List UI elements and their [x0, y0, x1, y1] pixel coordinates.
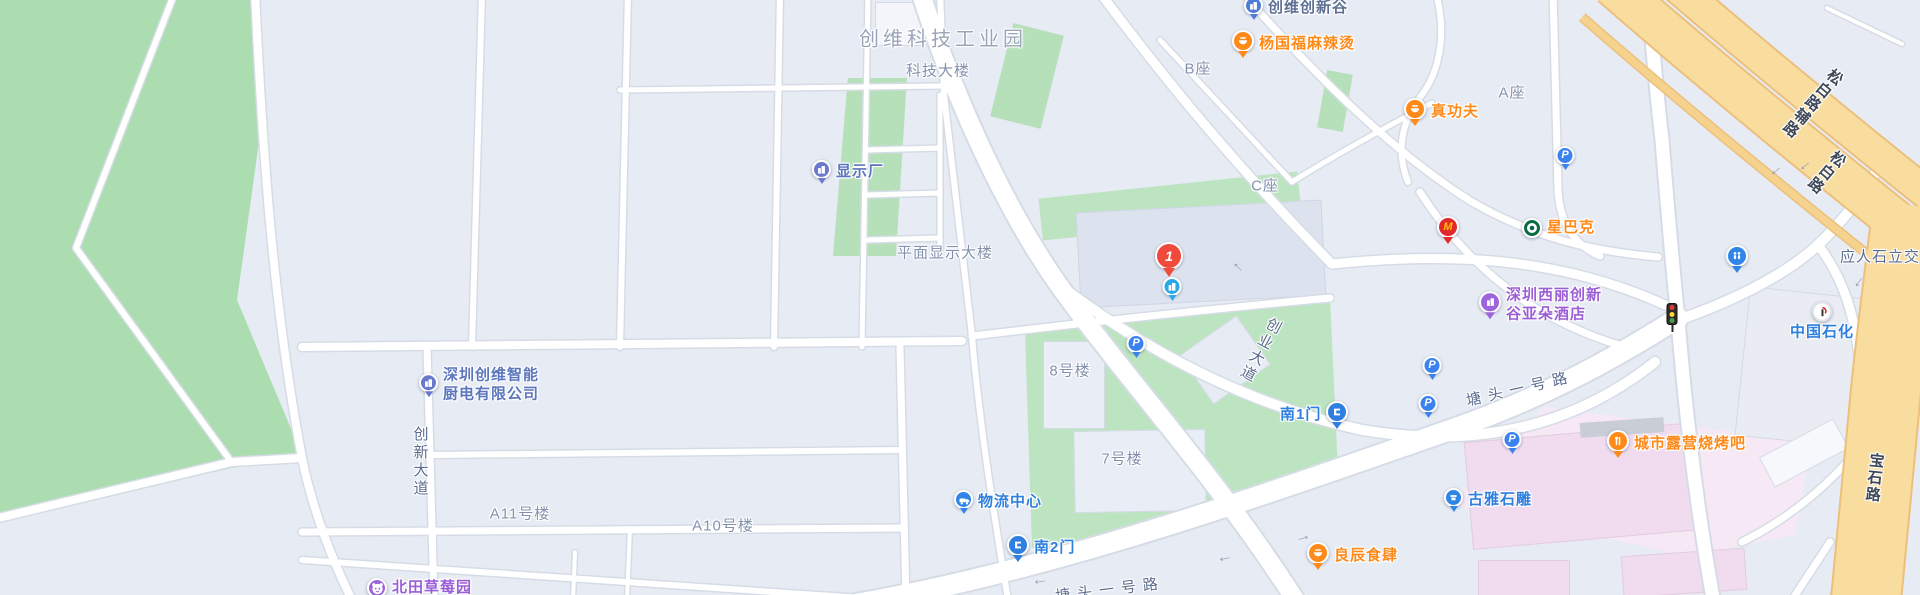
- traffic-light-icon: [1667, 303, 1678, 332]
- parking-icon[interactable]: P: [1419, 394, 1438, 418]
- road-arrow-icon: →: [1031, 573, 1049, 593]
- poi-label-line: 谷亚朵酒店: [1506, 305, 1602, 324]
- road-arrow-icon: →: [1215, 550, 1234, 571]
- label-flat-display-building: 平面显示大楼: [897, 242, 993, 263]
- building-icon[interactable]: [419, 373, 438, 397]
- poi-strawberry-farm[interactable]: 北田草莓园: [367, 578, 472, 595]
- poi-skyworth-innovation-valley[interactable]: 创维创新谷: [1244, 0, 1348, 20]
- restroom-poi[interactable]: [1726, 245, 1748, 273]
- result-marker-1[interactable]: 1: [1155, 242, 1183, 278]
- poi-label-line: 深圳创维智能: [443, 366, 539, 385]
- bowl-icon[interactable]: [1307, 542, 1329, 570]
- poi-south-gate-2[interactable]: 南2门: [1007, 534, 1075, 562]
- poi-city-camping-bbq[interactable]: 城市露营烧烤吧: [1607, 430, 1746, 458]
- poi-atour-hotel[interactable]: 深圳西丽创新谷亚朵酒店: [1479, 286, 1602, 324]
- label-block-a: A座: [1498, 82, 1525, 103]
- poi-display-factory[interactable]: 显示厂: [812, 160, 884, 184]
- parking-p-glyph: P: [1132, 338, 1139, 349]
- poi-atour-hotel-label[interactable]: 深圳西丽创新谷亚朵酒店: [1506, 286, 1602, 324]
- building-icon[interactable]: [812, 160, 831, 184]
- bowl-icon[interactable]: [1232, 30, 1254, 58]
- poi-south-gate-2-label[interactable]: 南2门: [1034, 539, 1075, 558]
- parking-poi[interactable]: P: [1423, 356, 1442, 380]
- parking-icon[interactable]: P: [1423, 356, 1442, 380]
- poi-skyworth-kitchen-label[interactable]: 深圳创维智能厨电有限公司: [443, 366, 539, 404]
- stone-box-icon[interactable]: [1444, 488, 1463, 512]
- label-chuangxin-avenue: 创新大道: [410, 426, 431, 498]
- poi-skyworth-innovation-valley-label[interactable]: 创维创新谷: [1268, 0, 1348, 17]
- poi-south-gate-1-label[interactable]: 南1门: [1280, 406, 1321, 425]
- truck-icon[interactable]: [954, 490, 973, 514]
- poi-guya-stone-carving-label[interactable]: 古雅石雕: [1468, 491, 1532, 510]
- poi-south-gate-1[interactable]: 南1门: [1280, 401, 1348, 429]
- poi-logistics-center-label[interactable]: 物流中心: [978, 493, 1042, 512]
- gate-icon[interactable]: [1007, 534, 1029, 562]
- parking-p-glyph: P: [1508, 434, 1515, 445]
- parking-icon[interactable]: P: [1503, 430, 1522, 454]
- parking-poi[interactable]: P: [1503, 430, 1522, 454]
- poi-yangguofu-label[interactable]: 杨国福麻辣烫: [1259, 35, 1355, 54]
- label-tech-building: 科技大楼: [906, 60, 970, 81]
- bowl-icon[interactable]: [1404, 98, 1426, 126]
- label-yingrenshi-interchange: 应人石立交: [1840, 246, 1920, 267]
- map-canvas[interactable]: 创维科技工业园 科技大楼 B座 A座 C座 平面显示大楼 8号楼 7号楼 A11…: [0, 0, 1920, 595]
- sinopec-icon[interactable]: [1812, 302, 1832, 322]
- parking-p-glyph: P: [1424, 398, 1431, 409]
- parking-poi[interactable]: P: [1419, 394, 1438, 418]
- poi-zhengongfu[interactable]: 真功夫: [1404, 98, 1479, 126]
- parking-poi[interactable]: P: [1127, 334, 1146, 358]
- poi-city-camping-bbq-label[interactable]: 城市露营烧烤吧: [1634, 435, 1746, 454]
- poi-skyworth-kitchen[interactable]: 深圳创维智能厨电有限公司: [419, 366, 539, 404]
- label-block-c: C座: [1251, 175, 1279, 196]
- starbucks-icon[interactable]: [1522, 218, 1542, 238]
- hotel-building-icon[interactable]: [1479, 291, 1501, 319]
- poi-mcdonalds[interactable]: M: [1437, 216, 1459, 244]
- fork-knife-icon[interactable]: [1607, 430, 1629, 458]
- poi-guya-stone-carving[interactable]: 古雅石雕: [1444, 488, 1532, 512]
- marker-1-pin-icon[interactable]: 1: [1155, 242, 1183, 278]
- panda-icon[interactable]: [367, 578, 387, 595]
- poi-yangguofu[interactable]: 杨国福麻辣烫: [1232, 30, 1355, 58]
- poi-liangchen-restaurant[interactable]: 良辰食肆: [1307, 542, 1398, 570]
- parking-p-glyph: P: [1428, 360, 1435, 371]
- label-building-8: 8号楼: [1049, 360, 1090, 381]
- label-building-a10: A10号楼: [692, 515, 754, 536]
- marker-number: 1: [1165, 249, 1173, 263]
- poi-label-line: 深圳西丽创新: [1506, 286, 1602, 305]
- poi-sinopec[interactable]: 中国石化: [1790, 302, 1854, 343]
- mcdonalds-icon[interactable]: M: [1437, 216, 1459, 244]
- label-building-a11: A11号楼: [490, 503, 551, 524]
- parking-p-glyph: P: [1561, 150, 1568, 161]
- parking-icon[interactable]: P: [1556, 146, 1575, 170]
- building-icon[interactable]: [1244, 0, 1263, 20]
- poi-starbucks[interactable]: 星巴克: [1522, 218, 1595, 238]
- poi-display-factory-label[interactable]: 显示厂: [836, 163, 884, 182]
- poi-starbucks-label[interactable]: 星巴克: [1547, 219, 1595, 238]
- parking-poi[interactable]: P: [1556, 146, 1575, 170]
- poi-strawberry-farm-label[interactable]: 北田草莓园: [392, 579, 472, 595]
- label-industrial-park: 创维科技工业园: [859, 23, 1027, 52]
- label-building-7: 7号楼: [1101, 448, 1142, 469]
- poi-logistics-center[interactable]: 物流中心: [954, 490, 1042, 514]
- gate-icon[interactable]: [1326, 401, 1348, 429]
- poi-liangchen-restaurant-label[interactable]: 良辰食肆: [1334, 547, 1398, 566]
- label-block-b: B座: [1184, 58, 1211, 79]
- restroom-icon[interactable]: [1726, 245, 1748, 273]
- mcdonalds-m-glyph: M: [1443, 222, 1452, 233]
- poi-zhengongfu-label[interactable]: 真功夫: [1431, 103, 1479, 122]
- poi-label-line: 厨电有限公司: [443, 385, 539, 404]
- poi-sinopec-label[interactable]: 中国石化: [1790, 324, 1854, 343]
- parking-icon[interactable]: P: [1127, 334, 1146, 358]
